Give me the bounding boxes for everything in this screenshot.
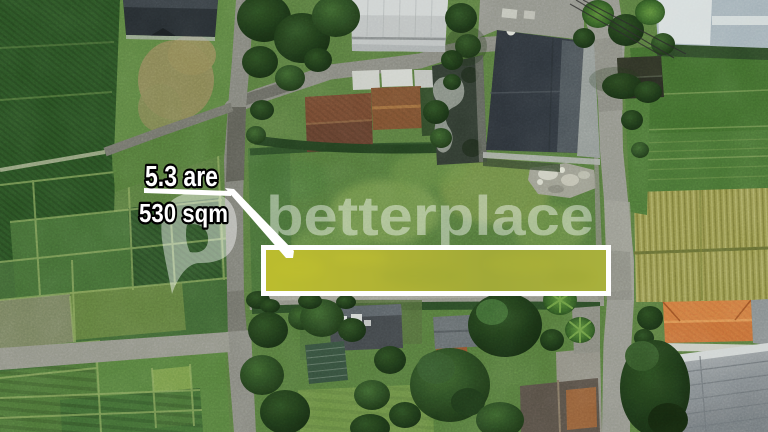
svg-text:5.3 are: 5.3 are xyxy=(145,161,218,193)
svg-text:530 sqm: 530 sqm xyxy=(139,198,228,228)
svg-text:betterplace: betterplace xyxy=(266,184,594,247)
